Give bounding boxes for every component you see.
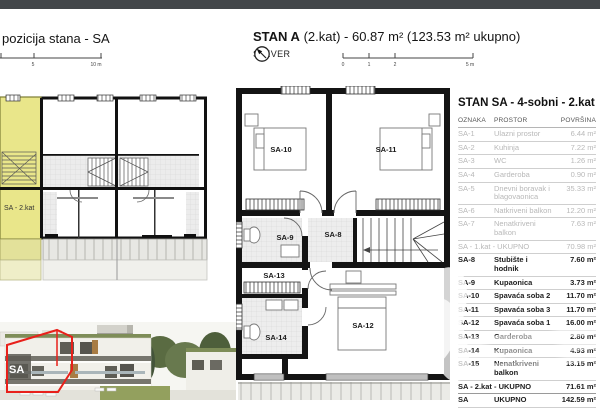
table-cell: 142.59 m² [556,396,596,405]
table-cell: 7.63 m² [556,220,596,229]
table-row: SA-7Nenatkriveni balkon7.63 m² [458,218,596,240]
table-cell: 35.33 m² [556,185,596,194]
siteplan-drawing: SA - 2.kat [0,94,212,286]
table-cell: SA-10 [458,292,494,301]
floorplan-title-areas: (2.kat) - 60.87 m² (123.53 m² ukupno) [304,29,521,44]
table-cell: SA-1 [458,130,494,139]
table-cell: SA-4 [458,171,494,180]
column-header-oznaka: OZNAKA [458,117,494,124]
table-row: SA-5Dnevni boravak i blagovaonica35.33 m… [458,183,596,205]
room-label-sa8: SA-8 [324,230,341,239]
table-cell: 4.93 m² [556,347,596,356]
floorplan-title: STAN A (2.kat) - 60.87 m² (123.53 m² uku… [253,29,520,44]
table-cell: 71.61 m² [556,383,596,392]
scale-tick-label: 5 m [466,62,474,68]
table-row: SA-6Natkriveni balkon12.20 m² [458,205,596,219]
siteplan-building: SA - 2.kat [0,95,207,280]
scale-tick-label: 2 [394,62,397,68]
building-render-photo: SA [0,322,236,400]
table-cell: Spavaća soba 2 [494,292,556,301]
room-label-sa12: SA-12 [352,321,373,330]
table-row: SA-3WC1.26 m² [458,155,596,169]
table-row: SA-1Ulazni prostor6.44 m² [458,128,596,142]
table-cell: SA-14 [458,347,494,356]
table-row: SA-9Kupaonica3.73 m² [458,277,596,291]
table-cell: Spavaća soba 3 [494,306,556,315]
table-cell: SA-15 [458,360,494,369]
table-row: SA-13Garderoba2.80 m² [458,331,596,345]
table-row: SA - 1.kat - UKUPNO70.98 m² [458,241,596,255]
table-cell: Nenatkriveni balkon [494,360,556,377]
table-cell: SA-6 [458,207,494,216]
table-cell: SA-13 [458,333,494,342]
table-cell: SA - 1.kat - UKUPNO [458,243,556,252]
table-cell: 70.98 m² [556,243,596,252]
table-cell: 13.15 m² [556,360,596,369]
table-cell: Kupaonica [494,347,556,356]
area-table-rows: SA-1Ulazni prostor6.44 m²SA-2Kuhinja7.22… [458,128,596,408]
table-cell: Natkriveni balkon [494,207,556,216]
table-cell: WC [494,157,556,166]
table-cell: 3.73 m² [556,279,596,288]
table-cell: SA-2 [458,144,494,153]
table-row: SA - 2.kat - UKUPNO71.61 m² [458,381,596,395]
table-cell: SA-3 [458,157,494,166]
table-cell: Nenatkriveni balkon [494,220,556,237]
table-row: SA-15Nenatkriveni balkon13.15 m² [458,358,596,380]
balcony-decking [238,382,450,400]
table-cell: Spavaća soba 1 [494,319,556,328]
area-table-title: STAN SA - 4-sobni - 2.kat [458,97,596,109]
table-row: SA-10Spavaća soba 211.70 m² [458,290,596,304]
table-row: SAUKUPNO142.59 m² [458,393,596,408]
table-cell: 0.90 m² [556,171,596,180]
table-cell: 7.60 m² [556,256,596,265]
room-label-sa11: SA-11 [376,145,397,154]
highlighted-unit-label: SA - 2.kat [4,205,34,212]
table-cell: 6.44 m² [556,130,596,139]
floorplan-title-apartment: STAN A [253,29,300,44]
table-cell: SA - 2.kat - UKUPNO [458,383,556,392]
terrace-decking [43,239,207,280]
table-cell: SA-5 [458,185,494,194]
table-row: SA-12Spavaća soba 116.00 m² [458,317,596,331]
north-arrow-icon [253,45,271,63]
table-cell: SA-11 [458,306,494,315]
table-row: SA-14Kupaonica4.93 m² [458,345,596,359]
table-cell: 1.26 m² [556,157,596,166]
scale-tick-label: 0 [342,62,345,68]
scale-tick-label: 5 [32,62,35,68]
room-label-sa9: SA-9 [276,233,293,242]
siteplan-title: pozicija stana - SA [2,31,110,46]
table-cell: SA-12 [458,319,494,328]
column-header-prostor: PROSTOR [494,117,556,124]
stairs-symbol [2,152,36,184]
table-cell: Ulazni prostor [494,130,556,139]
top-bar [0,0,600,9]
table-cell: 11.70 m² [556,306,596,315]
scale-tick-label: 10 m [90,62,101,68]
table-cell: SA-7 [458,220,494,229]
render-unit-label: SA [9,364,24,376]
floorplan-drawing: SA-10 SA-11 SA-9 SA-8 SA-13 SA-14 SA-12 [236,86,454,400]
room-label-sa10: SA-10 [270,145,291,154]
siteplan-scale-bar: 5 10 m [0,50,112,68]
room-label-sa14: SA-14 [265,333,287,342]
scale-tick-label: 1 [368,62,371,68]
room-label-sa13: SA-13 [263,271,284,280]
table-cell: UKUPNO [494,396,556,405]
table-row: SA-11Spavaća soba 311.70 m² [458,304,596,318]
area-table-header: OZNAKA PROSTOR POVRŠINA [458,115,596,128]
table-cell: 12.20 m² [556,207,596,216]
area-table-panel: STAN SA - 4-sobni - 2.kat OZNAKA PROSTOR… [458,97,596,408]
table-cell: SA-8 [458,256,494,265]
table-cell: Garderoba [494,171,556,180]
table-row: SA-8Stubište i hodnik7.60 m² [458,254,596,276]
floorplan-sheet: { "page": { "topbar_color": "#43474a", "… [0,0,600,400]
table-cell: SA-9 [458,279,494,288]
table-row: SA-2Kuhinja7.22 m² [458,142,596,156]
table-cell: 7.22 m² [556,144,596,153]
table-cell: Stubište i hodnik [494,256,556,273]
table-cell: 16.00 m² [556,319,596,328]
table-cell: SA [458,396,494,405]
table-cell: 11.70 m² [556,292,596,301]
table-cell: Garderoba [494,333,556,342]
table-cell: Kuhinja [494,144,556,153]
north-indicator: SJEVER [253,49,290,59]
column-header-povrsina: POVRŠINA [556,117,596,124]
table-cell: 2.80 m² [556,333,596,342]
table-cell: Kupaonica [494,279,556,288]
floorplan-scale-bar: 0 1 2 5 m [340,50,480,68]
table-row: SA-4Garderoba0.90 m² [458,169,596,183]
table-cell: Dnevni boravak i blagovaonica [494,185,556,202]
